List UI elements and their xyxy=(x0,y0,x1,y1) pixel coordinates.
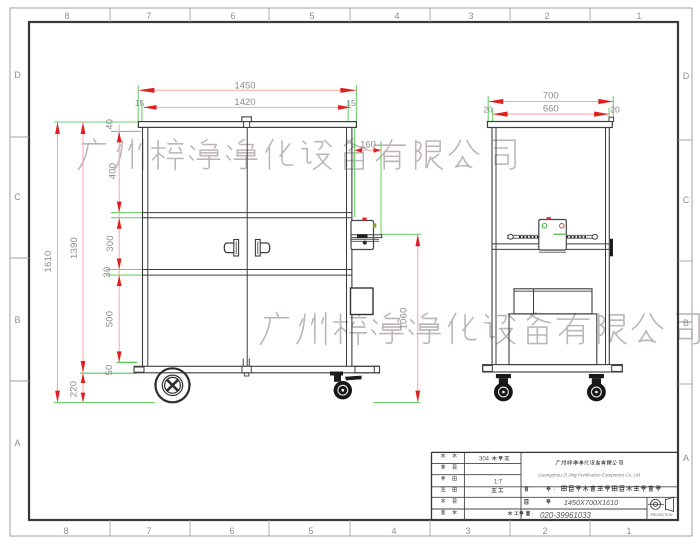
svg-text:2: 2 xyxy=(542,526,547,536)
svg-text:1420: 1420 xyxy=(234,97,255,108)
svg-text:15: 15 xyxy=(135,98,145,108)
svg-text:160: 160 xyxy=(360,140,376,151)
svg-text:304: 304 xyxy=(479,457,490,463)
svg-text:15: 15 xyxy=(346,98,356,108)
svg-text:1:7: 1:7 xyxy=(494,479,503,485)
svg-text:300: 300 xyxy=(105,235,116,251)
svg-text:30: 30 xyxy=(102,267,113,278)
svg-text:C: C xyxy=(683,195,690,205)
svg-text:40: 40 xyxy=(105,119,116,130)
svg-text:PROJECTION: PROJECTION xyxy=(651,513,673,517)
svg-text:1390: 1390 xyxy=(69,237,80,259)
svg-text:1610: 1610 xyxy=(43,251,54,273)
svg-text:A: A xyxy=(14,438,20,448)
svg-text:660: 660 xyxy=(543,103,559,114)
svg-text:B: B xyxy=(683,318,689,328)
svg-text:1450X700X1610: 1450X700X1610 xyxy=(564,498,618,507)
svg-text:7: 7 xyxy=(146,526,151,536)
svg-text:20: 20 xyxy=(610,105,620,115)
svg-text::: : xyxy=(554,487,556,494)
svg-text:020-39961033: 020-39961033 xyxy=(540,511,592,520)
svg-text:50: 50 xyxy=(104,365,115,376)
svg-text:1450: 1450 xyxy=(234,80,255,91)
svg-text:6: 6 xyxy=(229,526,234,536)
svg-text:6: 6 xyxy=(230,11,235,21)
svg-text:A: A xyxy=(683,453,689,463)
svg-text:220: 220 xyxy=(69,381,80,397)
svg-text:D: D xyxy=(14,70,21,80)
svg-text:5: 5 xyxy=(308,526,313,536)
svg-text:8: 8 xyxy=(63,526,68,536)
svg-text:4: 4 xyxy=(391,526,396,536)
svg-text:2: 2 xyxy=(544,11,549,21)
svg-text:Guangzhou Zi Jing Purification: Guangzhou Zi Jing Purification Equipment… xyxy=(538,473,640,478)
svg-text::: : xyxy=(532,512,534,519)
svg-text:400: 400 xyxy=(108,163,119,179)
svg-text:C: C xyxy=(14,192,21,202)
svg-text:7: 7 xyxy=(146,11,151,21)
svg-text:1060: 1060 xyxy=(399,308,410,330)
svg-text:700: 700 xyxy=(543,91,559,102)
svg-text:20: 20 xyxy=(483,105,493,115)
svg-text:3: 3 xyxy=(465,526,470,536)
svg-text:5: 5 xyxy=(309,11,314,21)
svg-text:1: 1 xyxy=(636,11,641,21)
svg-text:1: 1 xyxy=(626,526,631,536)
svg-text:4: 4 xyxy=(394,11,399,21)
svg-text:B: B xyxy=(14,315,20,325)
svg-text:8: 8 xyxy=(64,11,69,21)
svg-text:3: 3 xyxy=(468,11,473,21)
svg-text:D: D xyxy=(683,71,690,81)
svg-text:500: 500 xyxy=(105,311,116,327)
